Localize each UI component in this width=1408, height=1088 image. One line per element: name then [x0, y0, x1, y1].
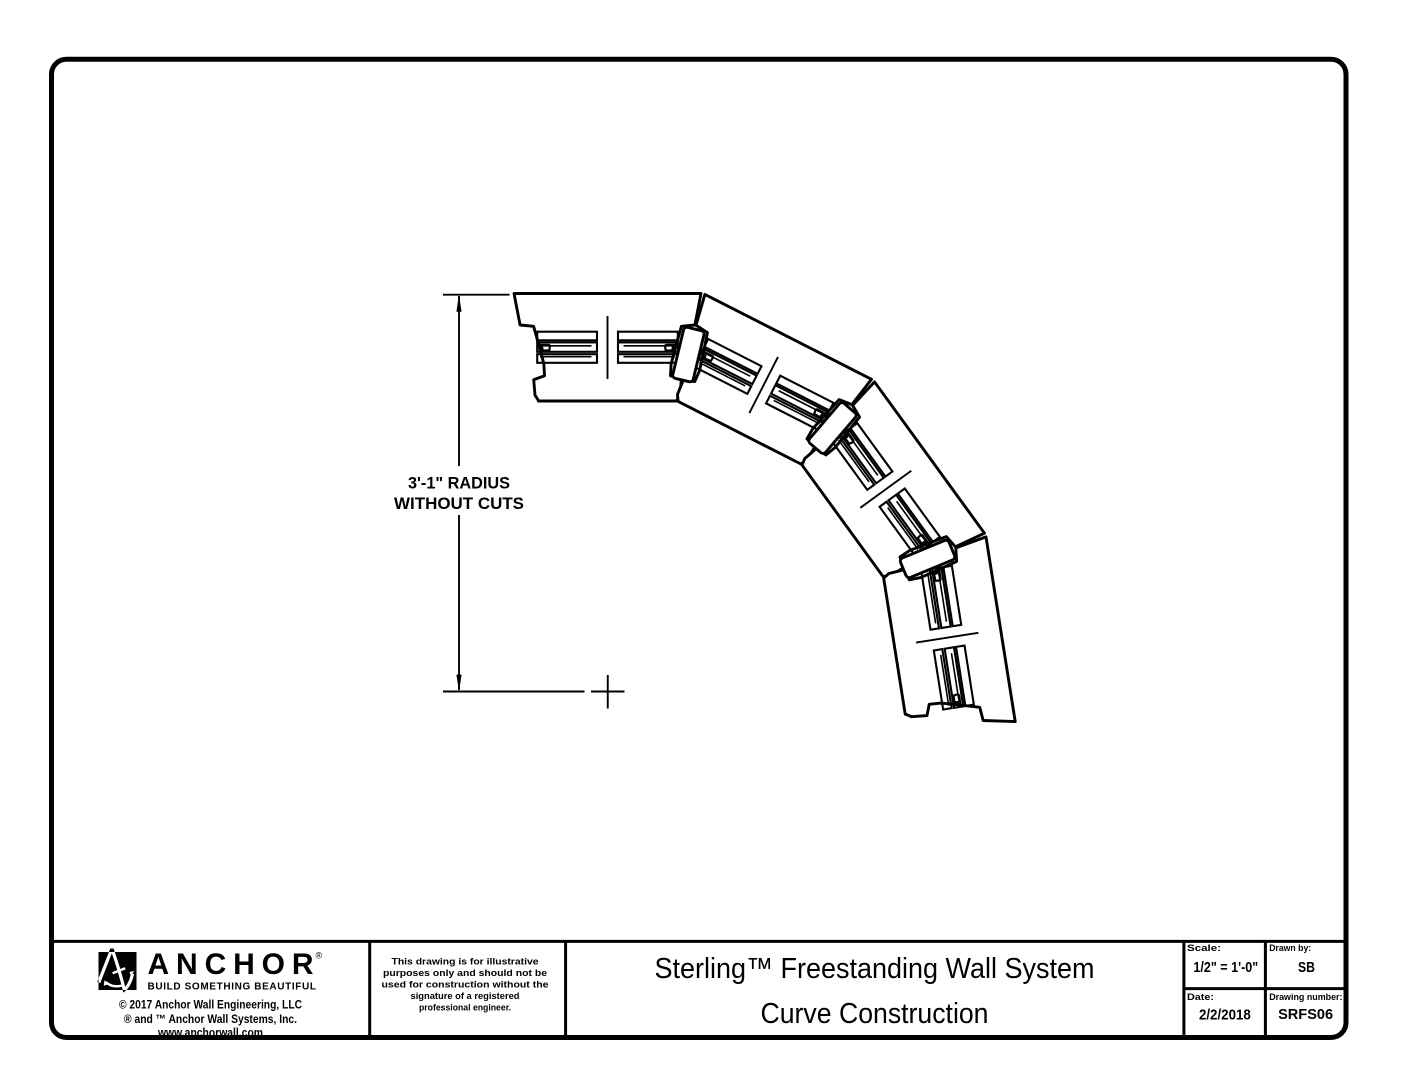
svg-text:® and ™ Anchor Wall Systems, I: ® and ™ Anchor Wall Systems, Inc.: [124, 1012, 297, 1026]
svg-text:Date:: Date:: [1187, 992, 1214, 1002]
svg-text:2/2/2018: 2/2/2018: [1199, 1008, 1251, 1024]
svg-text:professional engineer.: professional engineer.: [419, 1003, 511, 1014]
svg-text:3'-1" RADIUS: 3'-1" RADIUS: [408, 474, 510, 493]
svg-text:SRFS06: SRFS06: [1278, 1006, 1333, 1023]
svg-text:®: ®: [316, 951, 323, 961]
svg-text:Drawn by:: Drawn by:: [1269, 943, 1311, 953]
svg-text:1/2" = 1'-0": 1/2" = 1'-0": [1193, 960, 1258, 976]
svg-text:www.anchorwall.com: www.anchorwall.com: [157, 1026, 263, 1040]
svg-text:Drawing number:: Drawing number:: [1269, 992, 1342, 1002]
svg-text:WITHOUT CUTS: WITHOUT CUTS: [394, 494, 524, 513]
svg-text:purposes only and should not b: purposes only and should not be: [383, 968, 547, 979]
svg-text:BUILD SOMETHING BEAUTIFUL: BUILD SOMETHING BEAUTIFUL: [148, 981, 317, 992]
svg-text:Scale:: Scale:: [1187, 943, 1221, 953]
svg-text:SB: SB: [1298, 960, 1315, 976]
svg-text:This drawing is for illustrati: This drawing is for illustrative: [392, 957, 539, 968]
svg-text:© 2017 Anchor Wall Engineering: © 2017 Anchor Wall Engineering, LLC: [119, 998, 302, 1012]
svg-text:used for construction without: used for construction without the: [382, 980, 549, 991]
svg-text:Curve Construction: Curve Construction: [761, 998, 989, 1030]
svg-text:Sterling™ Freestanding Wall Sy: Sterling™ Freestanding Wall System: [655, 953, 1095, 985]
svg-text:signature of a registered: signature of a registered: [411, 991, 520, 1002]
